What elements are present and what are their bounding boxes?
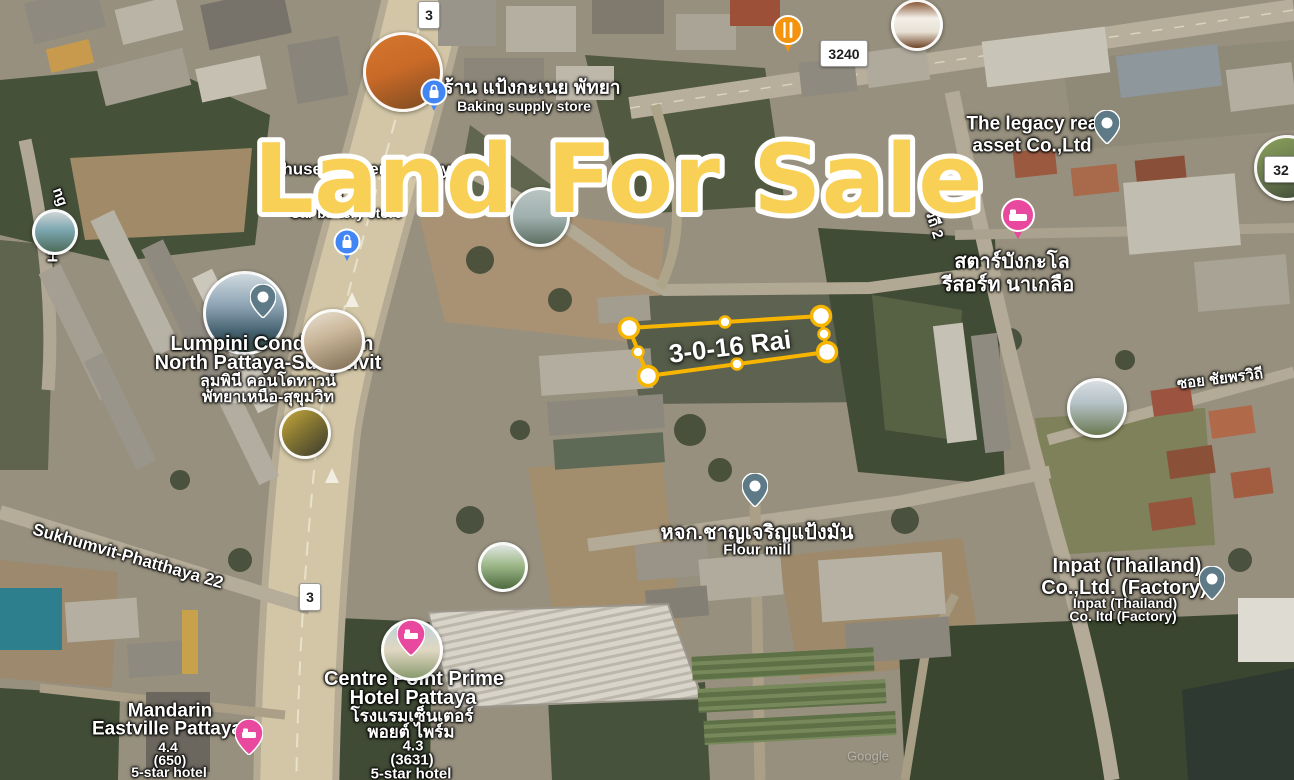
label-flour-mill-thai[interactable]: หจก.ชาญเจริญแป้งมัน [661, 523, 854, 543]
photo-thumbnail-skyline[interactable] [510, 187, 570, 247]
label-chusee-sub[interactable]: Car battery store [290, 206, 402, 220]
label-baking-en[interactable]: Baking supply store [457, 99, 591, 113]
fork-knife-icon[interactable] [771, 14, 805, 54]
label-lumpini-th1[interactable]: ลุมพินี คอนโดทาวน์ [200, 374, 336, 390]
label-inpat-sub2[interactable]: Co. ltd (Factory) [1069, 609, 1176, 623]
place-pin-icon[interactable] [1094, 110, 1120, 144]
photo-thumbnail-bed[interactable] [891, 0, 943, 51]
label-mandarin-en2[interactable]: Eastville Pattaya [92, 720, 242, 739]
place-pin-icon[interactable] [1199, 566, 1225, 600]
label-mandarin-category[interactable]: 5-star hotel [131, 765, 206, 779]
route-shield-3: 3 [299, 583, 321, 611]
label-baking-thai[interactable]: ร้าน แป้งกะเนย พัทยา [443, 79, 620, 98]
label-inpat-1[interactable]: Inpat (Thailand) [1053, 556, 1202, 576]
photo-thumbnail-green-house[interactable] [478, 542, 528, 592]
label-legacy-1[interactable]: The legacy real [966, 115, 1103, 134]
bed-icon[interactable] [397, 620, 425, 656]
label-legacy-2[interactable]: asset Co.,Ltd [972, 137, 1091, 156]
label-star-bungalow-1[interactable]: สตาร์บังกะโล [954, 252, 1069, 272]
bed-icon[interactable] [235, 719, 263, 755]
photo-thumbnail-machine[interactable] [279, 407, 331, 459]
label-star-bungalow-2[interactable]: รีสอร์ท นาเกลือ [942, 275, 1075, 295]
photo-thumbnail-store-left[interactable] [32, 209, 78, 255]
route-shield-3240: 3240 [820, 40, 868, 67]
map-stage: Sukhumvit-Phatthaya 22 ซอย ชัยพรวิถี วิถ… [0, 0, 1294, 780]
route-shield-32: 32 [1264, 156, 1294, 183]
label-centre-point-en2[interactable]: Hotel Pattaya [350, 688, 477, 708]
label-chusee-thai[interactable]: ชุ [333, 183, 343, 197]
route-shield-3: 3 [418, 1, 440, 29]
photo-thumbnail-house[interactable] [1067, 378, 1127, 438]
bed-icon[interactable] [999, 197, 1037, 243]
map-watermark: Google [847, 749, 889, 764]
place-pin-icon[interactable] [742, 473, 768, 507]
shopping-bag-icon[interactable] [420, 78, 448, 112]
label-chusee-en[interactable]: Chusee Battery Pattaya [270, 161, 460, 178]
place-pin-icon[interactable] [250, 284, 276, 318]
label-centre-point-category[interactable]: 5-star hotel [371, 767, 452, 780]
shopping-bag-icon[interactable] [333, 228, 361, 262]
photo-thumbnail-interior[interactable] [301, 309, 365, 373]
label-lumpini-th2[interactable]: พัทยาเหนือ-สุขุมวิท [202, 390, 334, 406]
label-flour-mill-en[interactable]: Flour mill [723, 543, 791, 558]
